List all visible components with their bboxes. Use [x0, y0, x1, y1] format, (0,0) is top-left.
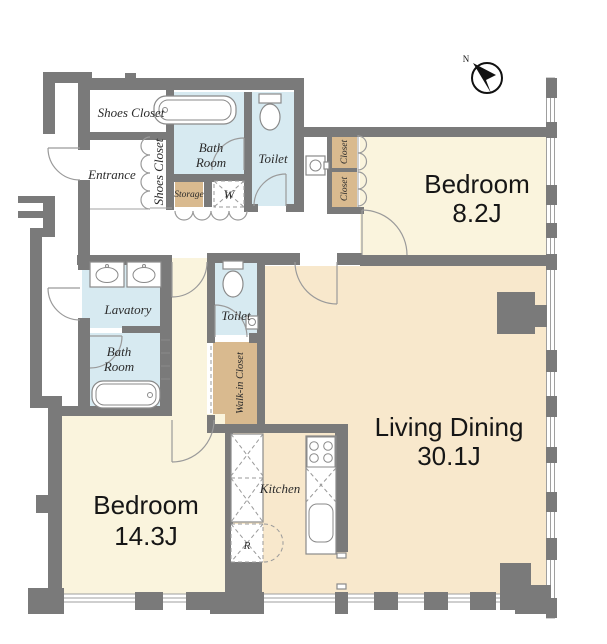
lavatory-door — [48, 288, 80, 320]
shoes-closet-strip-label: Shoes Closet — [151, 138, 166, 205]
toilet1-label: Toilet — [258, 151, 288, 166]
bedroom14-size: 14.3J — [114, 521, 178, 551]
walk-in-closet-label: Walk-in Closet — [235, 351, 246, 414]
pillar-mid-right — [497, 292, 535, 334]
pillar-bottom-center — [228, 560, 262, 596]
bathroom2-label-line1: Bath — [107, 344, 132, 359]
entrance-door — [48, 148, 80, 180]
hand-basin — [306, 156, 329, 175]
entrance-label: Entrance — [87, 167, 136, 182]
lavatory-label: Lavatory — [104, 302, 152, 317]
toilet2-label: Toilet — [221, 308, 251, 323]
bathroom1-label-line2: Room — [195, 155, 226, 170]
living-size: 30.1J — [417, 441, 481, 471]
shoes-closet-room-label: Shoes Closet — [98, 105, 165, 120]
kitchen-label: Kitchen — [259, 481, 300, 496]
bathroom2-label-line2: Room — [103, 359, 134, 374]
floorplan-drawing: Shoes Closet Entrance Shoes Closet Bath … — [0, 0, 607, 644]
kitchen-island — [306, 436, 336, 554]
compass: N — [463, 54, 502, 93]
refrigerator-label: R — [243, 540, 251, 552]
bedroom8-name: Bedroom — [424, 169, 530, 199]
floorplan-page: Shoes Closet Entrance Shoes Closet Bath … — [0, 0, 607, 644]
bedroom14-name: Bedroom — [93, 490, 199, 520]
toilet1-fixture — [259, 94, 281, 130]
living-name: Living Dining — [375, 412, 524, 442]
kitchen-counter — [231, 434, 263, 522]
closet-upper-label: Closet — [340, 140, 350, 165]
storage-label: Storage — [174, 190, 204, 200]
closet-lower-label: Closet — [340, 177, 350, 202]
hall-floor — [170, 258, 207, 424]
storage-washer-doors — [175, 211, 247, 220]
bathroom1-label-line1: Bath — [199, 140, 224, 155]
washer-label: W — [224, 187, 236, 202]
bedroom8-size: 8.2J — [452, 198, 501, 228]
bathtub2 — [92, 381, 160, 408]
north-label: N — [463, 54, 470, 64]
